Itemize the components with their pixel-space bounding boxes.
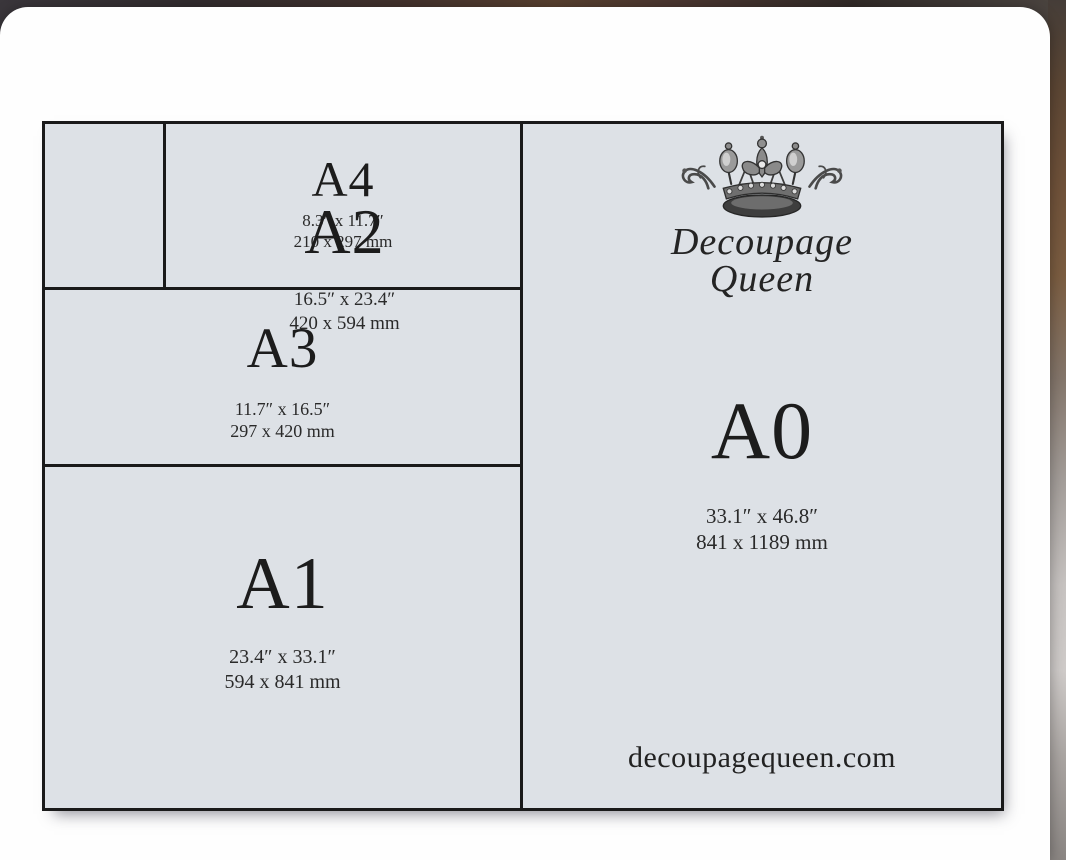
a0-millimeters: 841 x 1189 mm [523, 529, 1001, 555]
cell-a2: A2 16.5″ x 23.4″ 420 x 594 mm [166, 124, 523, 467]
cell-a0: Decoupage Queen A0 33.1″ x 46.8″ 841 x 1… [523, 124, 1001, 808]
brand-website: decoupagequeen.com [523, 741, 1001, 775]
a0-dimensions: 33.1″ x 46.8″ 841 x 1189 mm [523, 503, 1001, 556]
chart-left-half: A4 8.3″ x 11.7″ 210 x 297 mm A3 11.7″ x … [45, 124, 523, 808]
brand-panel: Decoupage Queen A0 33.1″ x 46.8″ 841 x 1… [523, 124, 1001, 808]
a2-inches: 16.5″ x 23.4″ [289, 288, 399, 311]
a2-millimeters: 420 x 594 mm [289, 312, 399, 335]
a1-millimeters: 594 x 841 mm [224, 670, 340, 694]
a1-label: A1 [236, 547, 328, 621]
cell-a5-blank [45, 124, 166, 287]
crown-icon [667, 132, 857, 220]
a0-label: A0 [523, 390, 1001, 472]
background-photo-right [1048, 0, 1066, 860]
a1-dimensions: 23.4″ x 33.1″ 594 x 841 mm [224, 645, 340, 694]
a1-inches: 23.4″ x 33.1″ [224, 645, 340, 669]
a0-inches: 33.1″ x 46.8″ [523, 503, 1001, 529]
page: A4 8.3″ x 11.7″ 210 x 297 mm A3 11.7″ x … [0, 0, 1066, 860]
a2-label: A2 [304, 200, 384, 264]
cell-a1: A1 23.4″ x 33.1″ 594 x 841 mm [45, 467, 520, 808]
a2-dimensions: 16.5″ x 23.4″ 420 x 594 mm [289, 288, 399, 334]
product-image-card: A4 8.3″ x 11.7″ 210 x 297 mm A3 11.7″ x … [0, 7, 1050, 860]
paper-size-chart: A4 8.3″ x 11.7″ 210 x 297 mm A3 11.7″ x … [42, 121, 1004, 811]
brand-name-line2: Queen [523, 257, 1001, 301]
